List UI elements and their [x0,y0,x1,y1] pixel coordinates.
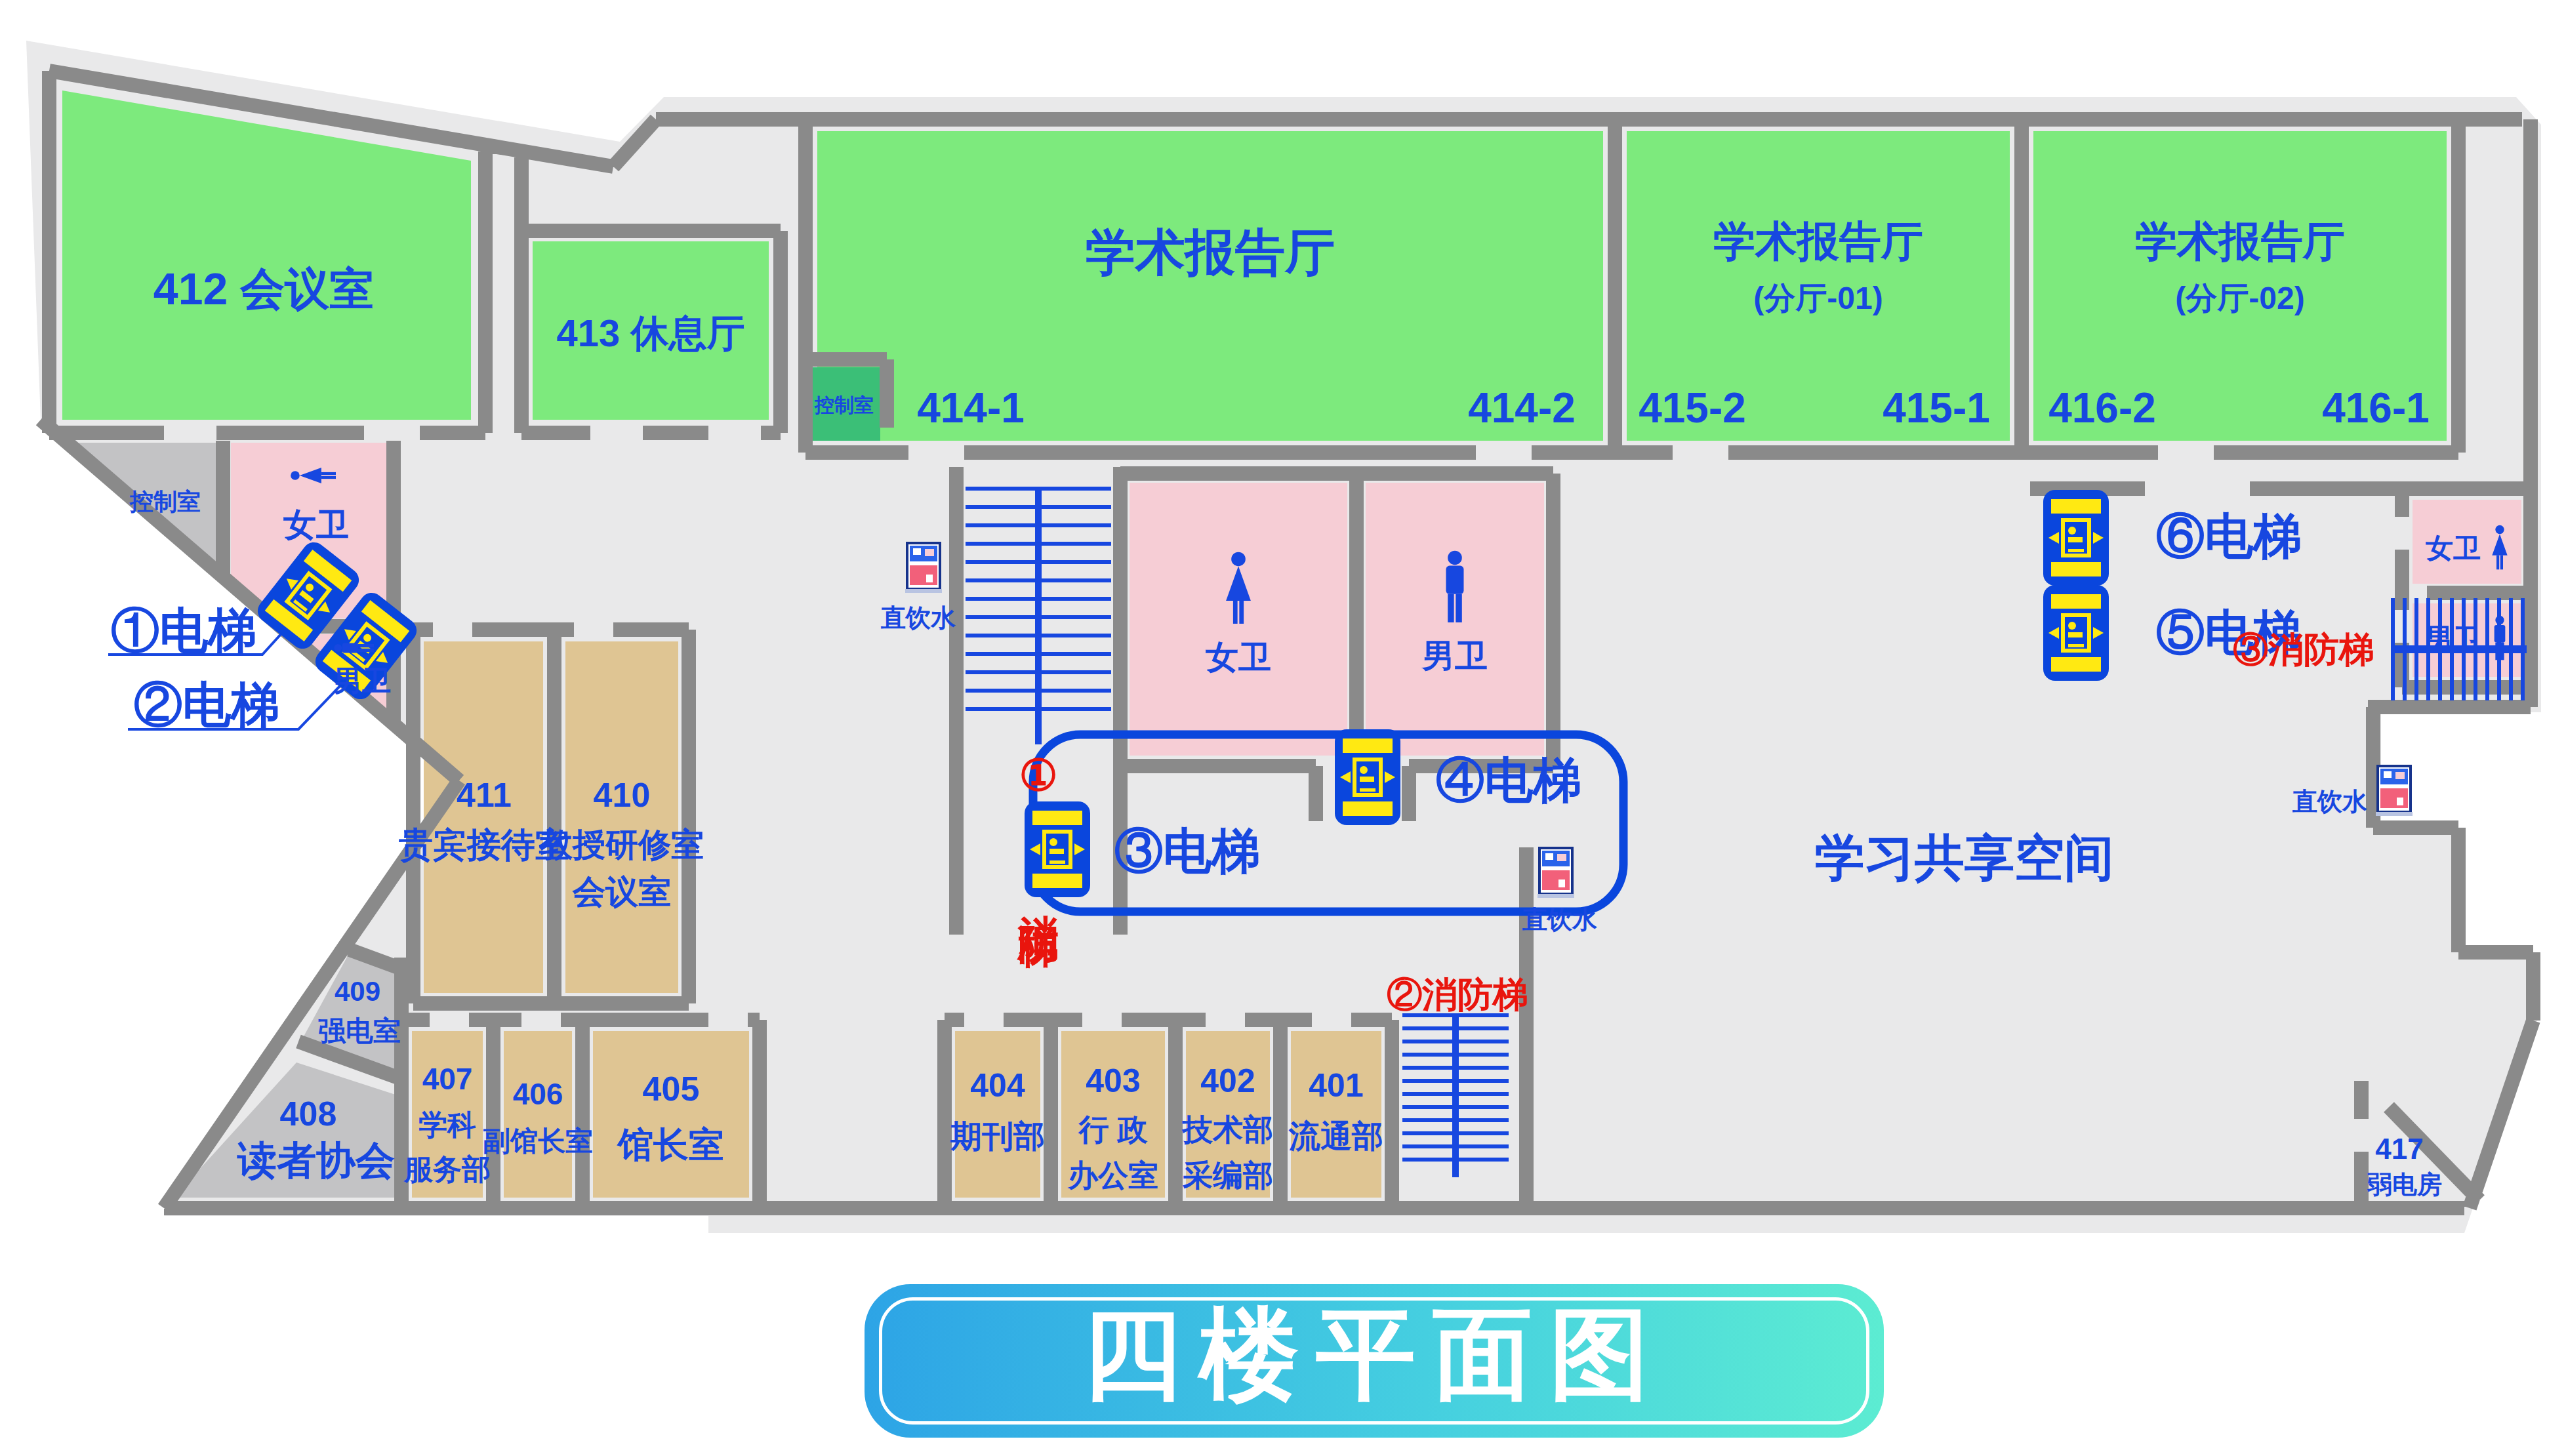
water-label-3: 直饮水 [2292,789,2367,814]
elevator-3-label: ③电梯 [1114,827,1260,876]
room-410-name2: 会议室 [573,876,671,908]
toilet-f-center-fill [1130,483,1347,756]
fire-stairs-3-label: ③消防梯 [2233,632,2374,667]
toilet-f-right-label: 女卫 [2426,535,2481,562]
room-404-name: 期刊部 [950,1121,1045,1152]
room-417-number: 417 [2375,1135,2423,1163]
elevator-1-label: ①电梯 [111,607,256,655]
room-403-number: 403 [1086,1064,1140,1097]
hall-414-corner-right: 414-2 [1468,387,1576,429]
room-412-label: 412 会议室 [153,266,374,311]
room-401-name: 流通部 [1289,1121,1383,1152]
room-407-number: 407 [422,1064,473,1094]
room-402-name1: 技术部 [1183,1114,1273,1144]
room-401-number: 401 [1309,1069,1363,1102]
page-title: 四楼平面图 [1082,1288,1666,1423]
hall-414-corner-left: 414-1 [917,387,1025,429]
elevator-6-label: ⑥电梯 [2156,512,2302,561]
room-402-name2: 采编部 [1183,1160,1273,1190]
room-410-name1: 教授研修室 [540,828,704,861]
hall-414-label: 学术报告厅 [1086,228,1335,277]
toilet-f-center-label: 女卫 [1206,641,1271,674]
hall-415-corner-left: 415-2 [1639,387,1746,429]
room-407-name2: 服务部 [404,1155,491,1184]
fire-stairs-2-label: ②消防梯 [1387,977,1528,1012]
hall-416-corner-right: 416-1 [2322,387,2430,429]
room-405-fill [593,1031,749,1198]
room-406-fill [504,1031,572,1198]
room-409-number: 409 [335,978,380,1005]
room-406-name: 副馆长室 [483,1127,593,1155]
toilet-m-left-label: 男卫 [333,666,391,695]
elevator-2-label: ②电梯 [134,681,279,729]
toilet-m-center-fill [1366,483,1544,756]
room-411-number: 411 [457,778,512,812]
room-402-number: 402 [1200,1064,1255,1097]
room-406-number: 406 [513,1079,563,1109]
elevator-6-icon [2043,490,2109,586]
elevator-5-icon [2043,585,2109,681]
room-409-name: 强电室 [318,1017,401,1045]
toilet-m-right-label: 男卫 [2426,625,2481,653]
water-label-1: 直饮水 [881,605,956,630]
fire-stairs-1-number: ① [1019,754,1057,797]
hall-416-sub: (分厅-02) [2175,283,2304,314]
commons-label: 学习共享空间 [1815,833,2114,883]
title-block: 四楼平面图 [865,1284,1884,1438]
room-410-number: 410 [594,778,651,812]
room-405-number: 405 [643,1072,700,1106]
room-417-name: 弱电房 [2367,1172,2442,1197]
room-403-name2: 办公室 [1068,1160,1158,1190]
room-404-fill [955,1031,1040,1198]
hall-415-corner-right: 415-1 [1883,387,1990,429]
floor-plan: 412 会议室 413 休息厅 学术报告厅 414-1 414-2 学术报告厅 … [0,0,2566,1456]
toilet-m-center-label: 男卫 [1422,639,1488,672]
hall-416-corner-left: 416-2 [2048,387,2156,429]
water-icon-3 [2376,766,2413,816]
water-icon-1 [905,543,942,593]
elevator-4-icon [1335,729,1400,825]
water-label-2: 直饮水 [1522,907,1597,932]
fire-stairs-1-label: 消防梯 [1018,882,1059,902]
room-407-name1: 学科 [418,1110,476,1139]
room-408-name: 读者协会 [237,1141,395,1181]
elevator-4-label: ④电梯 [1436,756,1581,805]
room-405-name: 馆长室 [618,1127,724,1162]
room-410-fill [565,641,678,993]
water-icon-2 [1538,848,1574,898]
room-408-number: 408 [280,1097,337,1131]
toilet-f-left-label: 女卫 [283,508,349,541]
room-401-fill [1291,1031,1381,1198]
control-left-label: 控制室 [130,490,201,514]
hall-415-sub: (分厅-01) [1753,283,1883,314]
room-404-number: 404 [970,1069,1025,1102]
hall-416-label: 学术报告厅 [2135,220,2345,262]
control-small-label: 控制室 [815,395,874,415]
room-413-label: 413 休息厅 [557,314,745,352]
hall-415-label: 学术报告厅 [1713,220,1923,262]
room-403-name1: 行 政 [1079,1114,1148,1144]
